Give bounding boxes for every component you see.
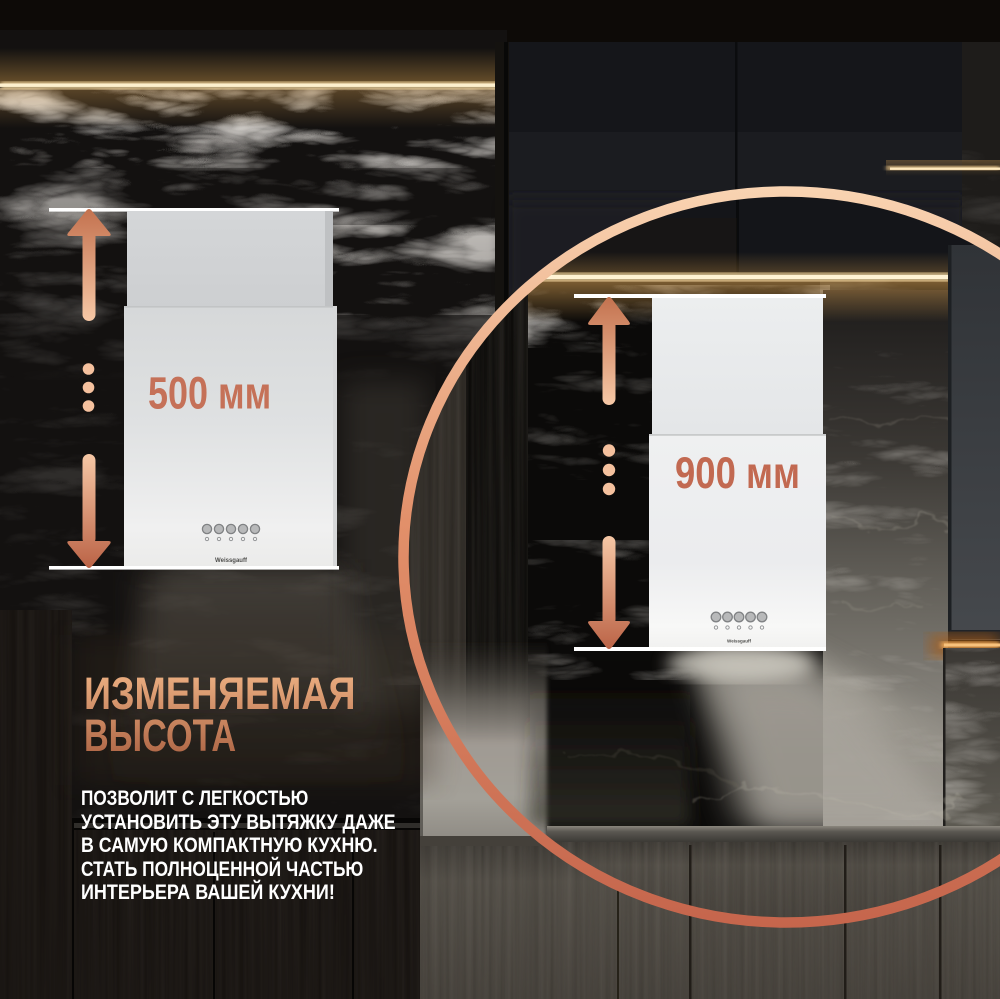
svg-text:СТАТЬ ПОЛНОЦЕННОЙ ЧАСТЬЮ: СТАТЬ ПОЛНОЦЕННОЙ ЧАСТЬЮ (81, 857, 363, 881)
svg-text:В САМУЮ КОМПАКТНУЮ КУХНЮ.: В САМУЮ КОМПАКТНУЮ КУХНЮ. (81, 834, 378, 858)
svg-text:ПОЗВОЛИТ С ЛЕГКОСТЬЮ: ПОЗВОЛИТ С ЛЕГКОСТЬЮ (81, 787, 308, 810)
svg-text:Weissgauff: Weissgauff (727, 639, 751, 644)
svg-text:ВЫСОТА: ВЫСОТА (84, 712, 236, 762)
svg-text:ИНТЕРЬЕРА ВАШЕЙ КУХНИ!: ИНТЕРЬЕРА ВАШЕЙ КУХНИ! (81, 879, 335, 905)
svg-text:Weissgauff: Weissgauff (215, 558, 248, 564)
svg-text:900 мм: 900 мм (675, 448, 800, 498)
svg-text:500 мм: 500 мм (148, 368, 271, 419)
svg-text:УСТАНОВИТЬ ЭТУ ВЫТЯЖКУ ДАЖЕ: УСТАНОВИТЬ ЭТУ ВЫТЯЖКУ ДАЖЕ (81, 811, 396, 835)
